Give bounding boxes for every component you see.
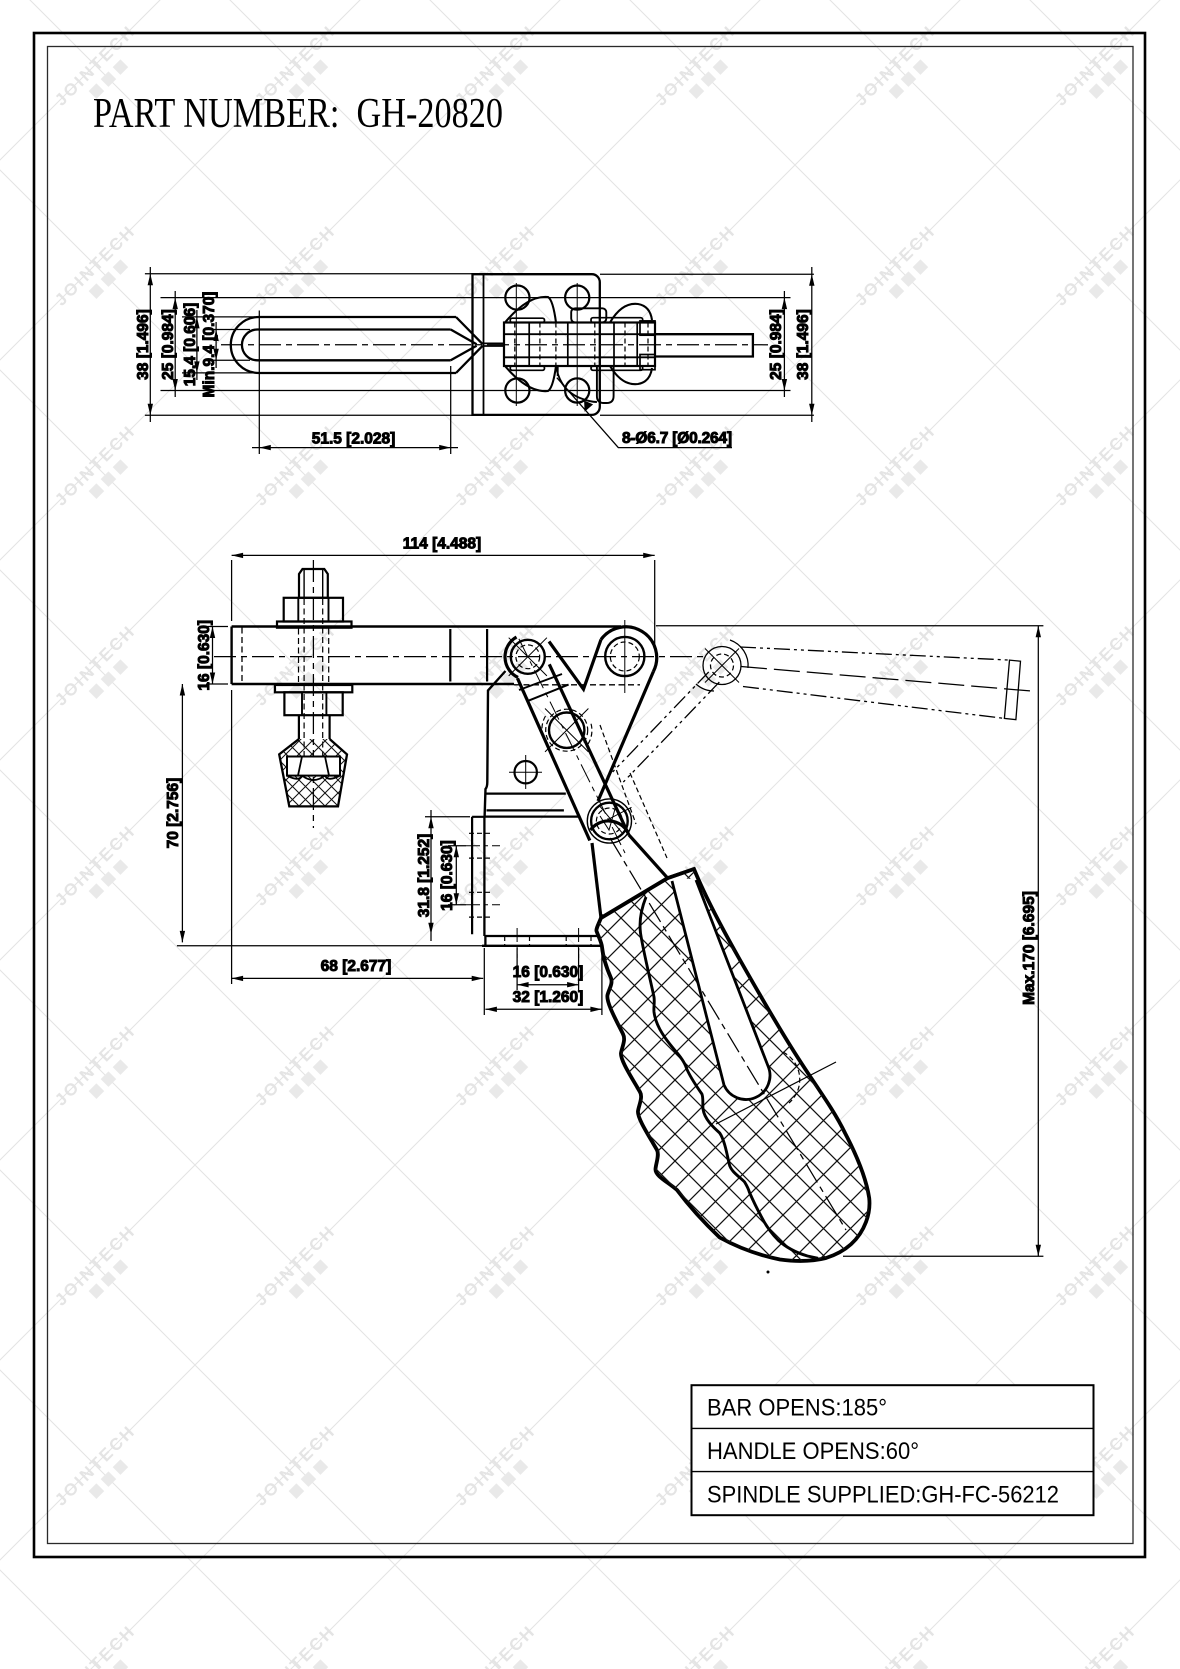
svg-text:32 [1.260]: 32 [1.260] (513, 989, 584, 1006)
svg-text:38 [1.496]: 38 [1.496] (795, 309, 812, 380)
svg-text:15.4 [0.606]: 15.4 [0.606] (182, 303, 199, 387)
svg-text:70 [2.756]: 70 [2.756] (165, 778, 182, 849)
svg-text:HANDLE OPENS:60°: HANDLE OPENS:60° (707, 1438, 919, 1465)
svg-text:38 [1.496]: 38 [1.496] (135, 309, 152, 380)
svg-text:31.8 [1.252]: 31.8 [1.252] (416, 834, 433, 918)
svg-text:25 [0.984]: 25 [0.984] (160, 309, 177, 380)
svg-text:51.5 [2.028]: 51.5 [2.028] (312, 430, 396, 447)
svg-text:PART NUMBER: GH-20820: PART NUMBER: GH-20820 (93, 91, 503, 137)
svg-text:16 [0.630]: 16 [0.630] (196, 620, 213, 691)
svg-text:25 [0.984]: 25 [0.984] (768, 309, 785, 380)
svg-text:SPINDLE SUPPLIED:GH-FC-56212: SPINDLE SUPPLIED:GH-FC-56212 (707, 1482, 1059, 1509)
svg-text:Min.9.4 [0.370]: Min.9.4 [0.370] (201, 292, 218, 398)
svg-text:16 [0.630]: 16 [0.630] (439, 840, 456, 911)
svg-text:68 [2.677]: 68 [2.677] (321, 958, 392, 975)
svg-text:114 [4.488]: 114 [4.488] (403, 536, 481, 553)
svg-text:16 [0.630]: 16 [0.630] (513, 964, 584, 981)
svg-text:BAR OPENS:185°: BAR OPENS:185° (707, 1395, 887, 1422)
svg-text:Max.170 [6.695]: Max.170 [6.695] (1021, 891, 1038, 1005)
svg-text:8-Ø6.7 [Ø0.264]: 8-Ø6.7 [Ø0.264] (622, 430, 732, 447)
